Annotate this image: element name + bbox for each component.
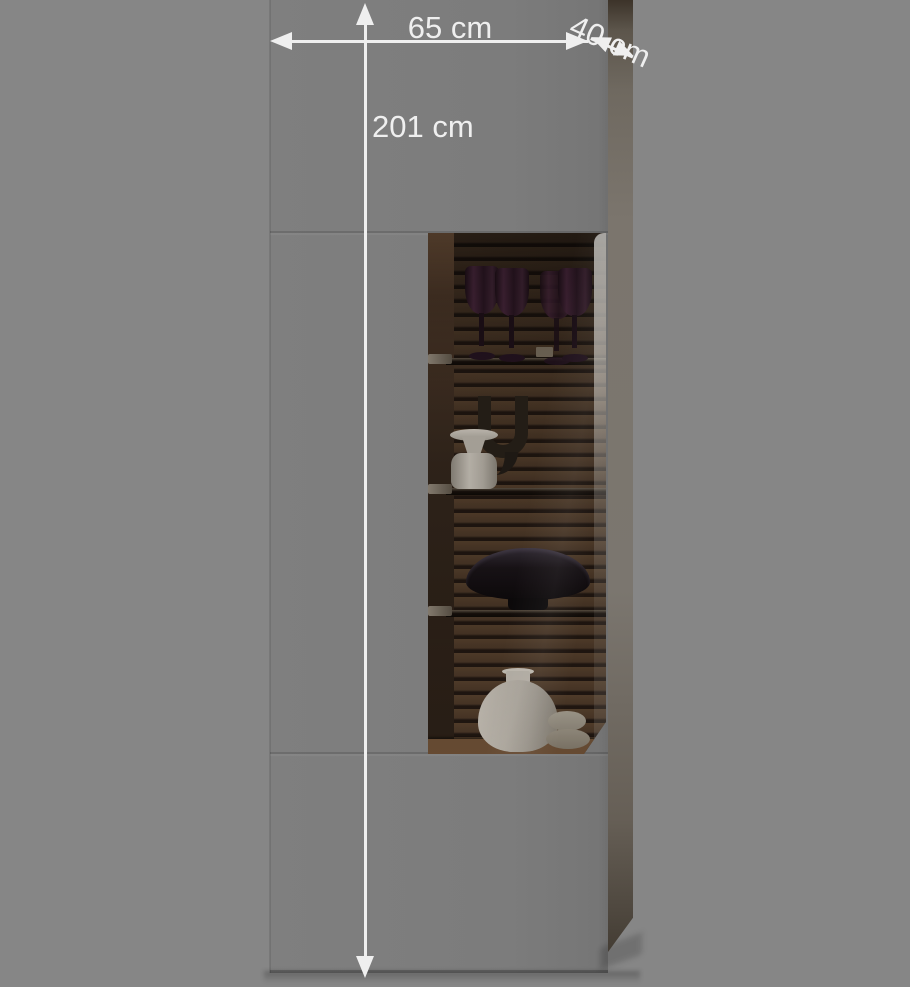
cabinet-left-edge bbox=[269, 0, 271, 973]
height-dimension-line bbox=[364, 22, 367, 958]
product-dimension-image: 65 cm 201 cm 40 cm bbox=[0, 0, 910, 987]
arrowhead-up-icon bbox=[356, 3, 374, 25]
height-dimension-label: 201 cm bbox=[372, 111, 474, 142]
glass-reflection-overlay bbox=[428, 233, 606, 754]
glass-display-case bbox=[428, 233, 606, 754]
door-seam-top bbox=[270, 231, 608, 233]
arrowhead-left-icon bbox=[270, 32, 292, 50]
floor-shadow bbox=[264, 971, 640, 983]
width-dimension-label: 65 cm bbox=[380, 12, 520, 43]
arrowhead-down-icon bbox=[356, 956, 374, 978]
cabinet-side-panel bbox=[608, 0, 633, 952]
